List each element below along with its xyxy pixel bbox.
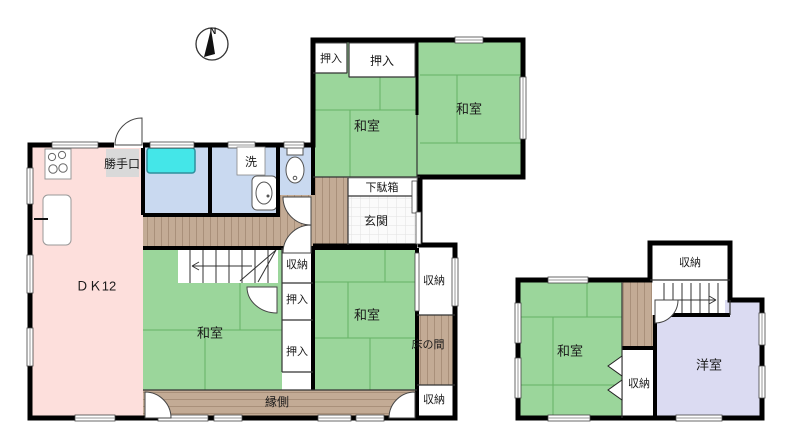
tokonoma-label: 床の間 [412, 337, 445, 351]
washing-machine-icon [252, 176, 277, 210]
laundry-label: 洗 [245, 155, 257, 169]
back-door-arc [115, 118, 142, 145]
closet-label: 押入 [370, 54, 394, 68]
room-fills [30, 40, 762, 418]
storage-label: 収納 [423, 393, 445, 406]
veranda-label: 縁側 [265, 394, 289, 409]
annex-hall-floor [622, 282, 655, 348]
storage-label: 収納 [286, 258, 308, 271]
dk-label: ＤＫ12 [76, 279, 116, 294]
washitsu-label: 和室 [557, 344, 583, 359]
compass-north-label: N [210, 26, 217, 36]
storage-label: 収納 [628, 377, 650, 390]
washitsu-label: 和室 [354, 308, 380, 323]
back-door-label: 勝手口 [104, 156, 140, 171]
stove-icon [45, 149, 71, 179]
compass-icon: N [196, 26, 228, 60]
storage-label: 収納 [679, 256, 701, 269]
floor-plan-canvas: N 勝手口 洗 ＤＫ12 押入 押入 和室 和室 下駄箱 玄関 収納 押入 押入… [0, 0, 800, 442]
hallway-floor [313, 177, 348, 245]
western-room-label: 洋室 [696, 358, 722, 373]
toilet-icon [286, 147, 304, 183]
washitsu-label: 和室 [354, 119, 380, 134]
bathtub-icon [147, 148, 195, 173]
closet-label: 押入 [286, 344, 308, 358]
closet-label: 押入 [320, 51, 342, 65]
shoe-cabinet-label: 下駄箱 [366, 180, 399, 194]
storage-label: 収納 [423, 274, 445, 287]
closet-label: 押入 [286, 292, 308, 306]
floor-plan: N 勝手口 洗 ＤＫ12 押入 押入 和室 和室 下駄箱 玄関 収納 押入 押入… [0, 0, 800, 442]
entrance-label: 玄関 [364, 213, 388, 228]
washitsu-label: 和室 [456, 102, 482, 117]
storage-sliding-front [415, 253, 419, 311]
washitsu-label: 和室 [197, 326, 223, 341]
